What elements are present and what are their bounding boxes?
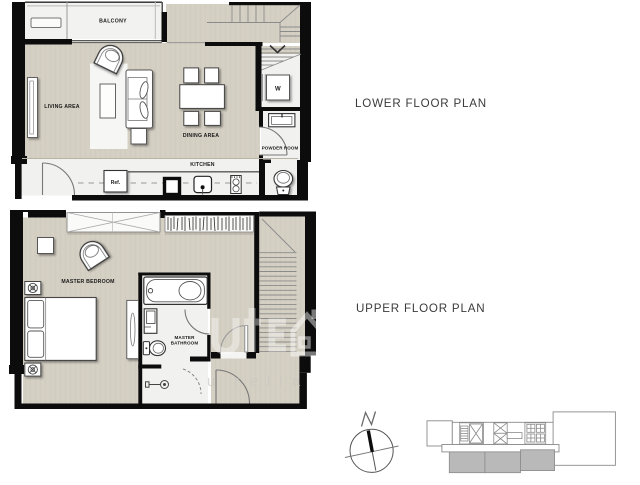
svg-text:LIVING AREA: LIVING AREA bbox=[44, 104, 79, 110]
svg-text:e: e bbox=[250, 374, 258, 390]
svg-text:LOWER FLOOR PLAN: LOWER FLOOR PLAN bbox=[355, 97, 487, 110]
svg-text:l: l bbox=[267, 374, 270, 390]
svg-text:POWDER ROOM: POWDER ROOM bbox=[262, 146, 299, 151]
svg-text:BALCONY: BALCONY bbox=[99, 19, 127, 25]
svg-text:i: i bbox=[279, 374, 282, 390]
svg-text:KITCHEN: KITCHEN bbox=[190, 162, 215, 168]
svg-text:UPPER FLOOR PLAN: UPPER FLOOR PLAN bbox=[356, 302, 485, 315]
svg-text:MASTER BEDROOM: MASTER BEDROOM bbox=[61, 279, 114, 285]
svg-text:MASTER: MASTER bbox=[175, 335, 196, 340]
svg-text:a: a bbox=[292, 374, 301, 390]
svg-text:DINING AREA: DINING AREA bbox=[183, 133, 219, 139]
svg-text:W: W bbox=[275, 87, 281, 93]
svg-text:Ref.: Ref. bbox=[111, 180, 121, 186]
svg-text:BATHROOM: BATHROOM bbox=[171, 341, 199, 346]
svg-text:r: r bbox=[234, 374, 239, 390]
svg-text:u: u bbox=[207, 374, 215, 390]
